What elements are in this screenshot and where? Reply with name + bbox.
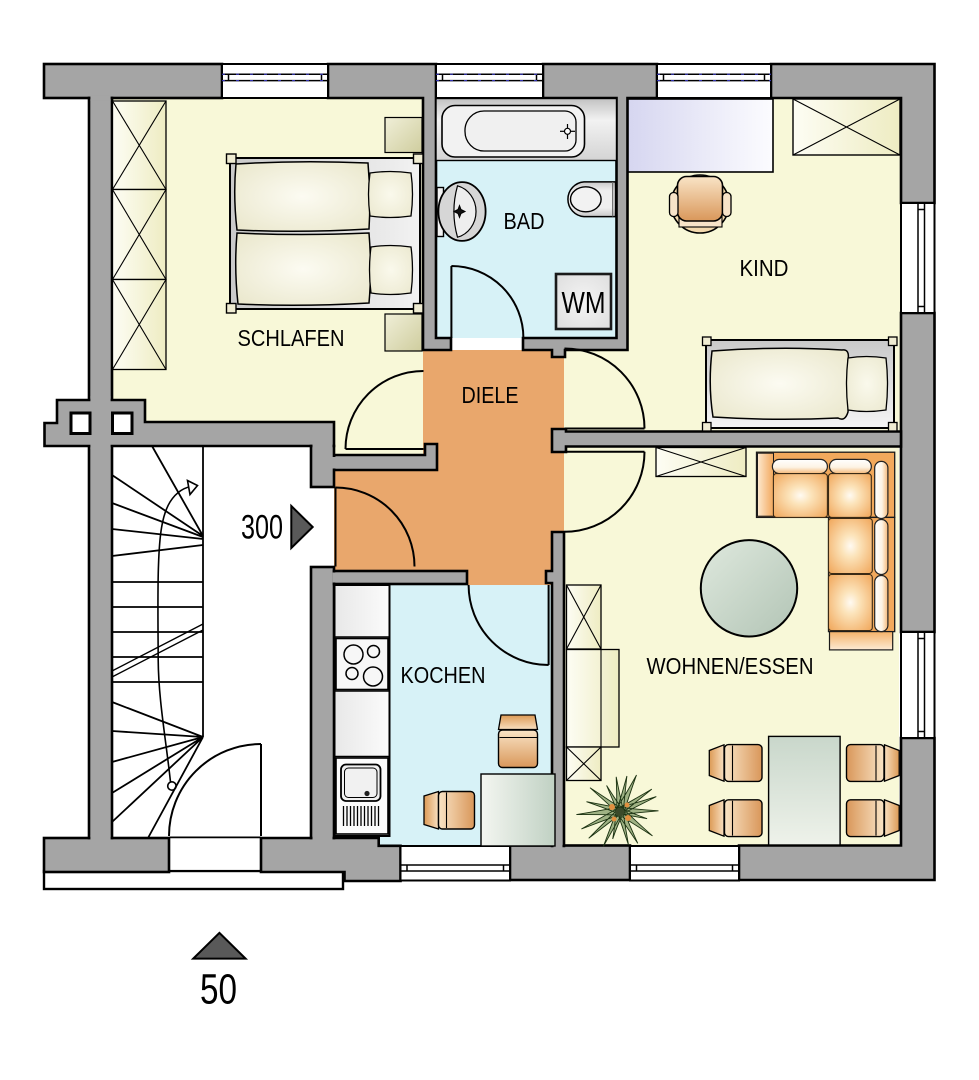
svg-text:50: 50 [200,966,237,1014]
svg-text:DIELE: DIELE [462,382,519,408]
svg-text:KOCHEN: KOCHEN [401,662,486,688]
svg-text:WOHNEN/ESSEN: WOHNEN/ESSEN [647,653,814,679]
svg-text:SCHLAFEN: SCHLAFEN [238,325,345,351]
svg-text:KIND: KIND [740,255,789,281]
svg-text:BAD: BAD [504,208,545,234]
svg-text:300: 300 [241,509,283,547]
svg-text:WM: WM [562,285,606,320]
